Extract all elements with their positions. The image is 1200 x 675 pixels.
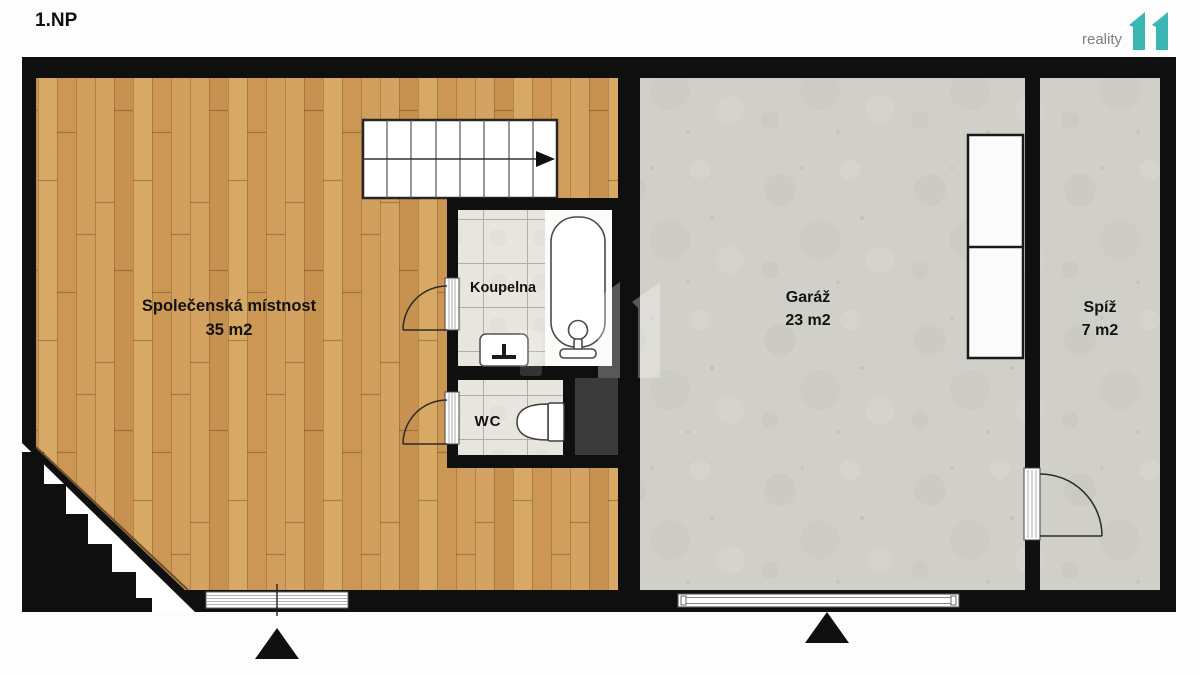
floor-plan-page: 1.NP reality [0, 0, 1200, 675]
pantry-label: Spíž 7 m2 [1039, 296, 1161, 342]
garage-name: Garáž [733, 286, 883, 309]
living-room-area: 35 m2 [79, 319, 379, 343]
garage-left-wall [618, 57, 640, 612]
garage-cabinets [968, 135, 1023, 358]
bathroom-name: Koupelna [455, 278, 551, 299]
living-room-label: Společenská místnost 35 m2 [79, 295, 379, 343]
wc-label: WC [462, 411, 514, 433]
living-room-name: Společenská místnost [79, 295, 379, 319]
garage-entrance-arrow-icon [805, 612, 849, 643]
entrance-arrow-icon [255, 628, 299, 659]
garage-door [678, 594, 959, 607]
garage-area: 23 m2 [733, 309, 883, 332]
wc-name: WC [462, 411, 514, 433]
shaft [575, 378, 618, 455]
staircase [363, 120, 557, 198]
toilet [517, 403, 564, 441]
bathtub [551, 217, 605, 358]
garage-label: Garáž 23 m2 [733, 286, 883, 332]
pantry-name: Spíž [1039, 296, 1161, 319]
pantry-area: 7 m2 [1039, 319, 1161, 342]
bathroom-label: Koupelna [455, 278, 551, 299]
